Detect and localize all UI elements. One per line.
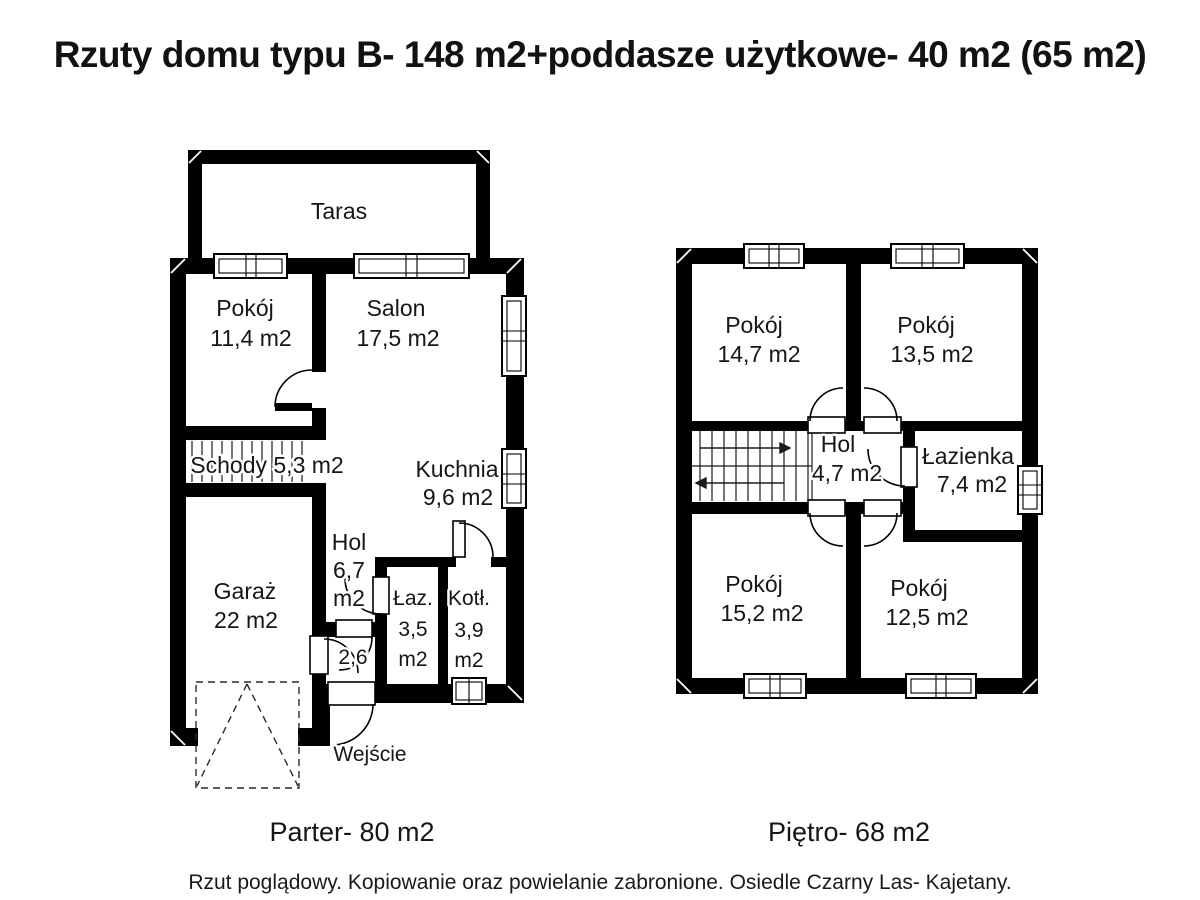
window (1018, 466, 1042, 514)
window (906, 674, 976, 698)
room-area-pokoj-nw: 14,7 m2 (717, 341, 800, 367)
door-kotlownia (453, 521, 493, 557)
room-label-lazienka: Łazienka (922, 443, 1014, 469)
garage-door (196, 682, 299, 788)
footer-disclaimer: Rzut poglądowy. Kopiowanie oraz powielan… (0, 871, 1200, 895)
upper-floor-caption: Piętro- 68 m2 (768, 817, 930, 847)
window (214, 254, 287, 278)
room-area-kuchnia: 9,6 m2 (423, 484, 493, 510)
room-area-unit-kotl: m2 (454, 649, 483, 672)
room-label-kuchnia: Kuchnia (415, 456, 498, 482)
room-area-unit-hol: m2 (333, 585, 365, 611)
room-label-taras: Taras (311, 198, 367, 224)
window (452, 678, 486, 704)
room-area-kotl: 3,9 (454, 619, 483, 642)
room-label-hol: Hol (332, 529, 367, 555)
room-label-garaz: Garaż (214, 578, 277, 604)
stairs-hatch (692, 431, 812, 501)
ground-floor-caption: Parter- 80 m2 (269, 817, 434, 847)
room-label-laz: Łaz. (393, 587, 433, 610)
room-label-pokoj-nw: Pokój (725, 312, 783, 338)
window (744, 244, 804, 268)
room-area-hol: 4,7 m2 (812, 460, 882, 486)
window (354, 254, 469, 278)
room-area-pokoj-se: 12,5 m2 (885, 604, 968, 630)
room-area-unit-laz: m2 (398, 648, 427, 671)
room-label-kotl: Kotł. (448, 587, 490, 610)
window (891, 244, 964, 268)
room-area-pokoj-sw: 15,2 m2 (720, 600, 803, 626)
room-area-lazienka: 7,4 m2 (937, 471, 1007, 497)
upper-floor-plan: Pokój 14,7 m2 Pokój 13,5 m2 Hol 4,7 m2 Ł… (676, 244, 1042, 847)
room-area-garaz: 22 m2 (214, 607, 278, 633)
room-label-pokoj-se: Pokój (890, 575, 948, 601)
room-label-pokoj: Pokój (216, 295, 274, 321)
entrance-label: Wejście (333, 743, 406, 766)
room-label-pokoj-sw: Pokój (725, 571, 783, 597)
door-pokoj-se (864, 500, 901, 546)
room-area-pokoj: 11,4 m2 (210, 325, 291, 351)
window (744, 674, 806, 698)
door-pokoj-ne (864, 388, 901, 433)
ground-floor-plan: Taras Pokój 11,4 m2 Salon 17,5 m2 Schody… (170, 150, 526, 847)
room-label-pokoj-ne: Pokój (897, 312, 955, 338)
room-area-pokoj-ne: 13,5 m2 (890, 341, 973, 367)
room-area-wiatrolap: 2,6 (338, 646, 367, 669)
room-area-laz: 3,5 (398, 618, 427, 641)
floor-plans-canvas: Taras Pokój 11,4 m2 Salon 17,5 m2 Schody… (0, 0, 1200, 900)
window (502, 449, 526, 508)
room-label-hol: Hol (821, 431, 856, 457)
window (502, 296, 526, 376)
door-pokoj-sw (808, 500, 845, 546)
entrance-door (328, 682, 375, 745)
door-pokoj-nw (808, 388, 845, 433)
room-label-salon: Salon (367, 295, 426, 321)
room-area-salon: 17,5 m2 (356, 325, 439, 351)
room-label-schody: Schody 5,3 m2 (190, 452, 343, 478)
door-pokoj (275, 370, 312, 411)
room-area-hol: 6,7 (333, 557, 365, 583)
